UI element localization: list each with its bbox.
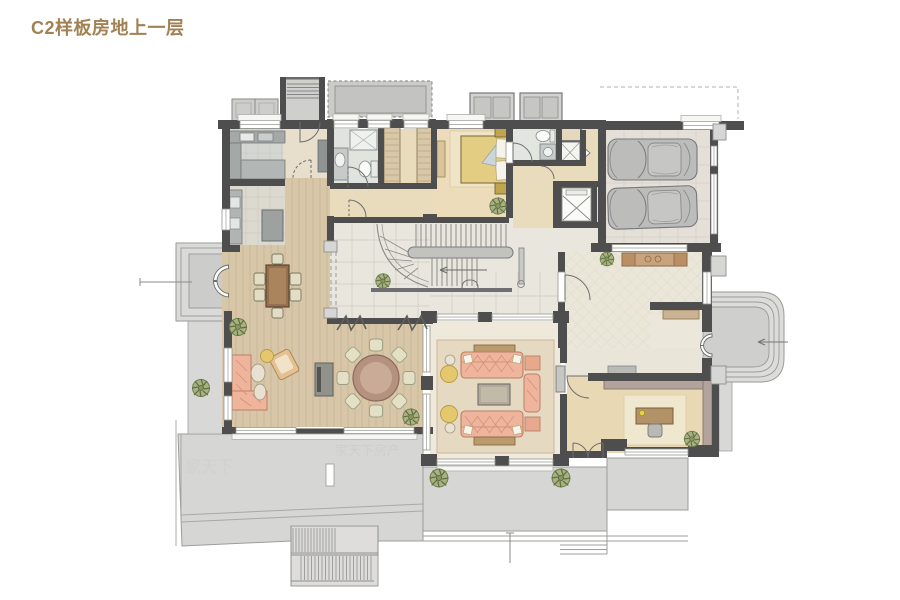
svg-text:家天下房产: 家天下房产 xyxy=(335,443,400,458)
svg-text:家天下: 家天下 xyxy=(185,457,233,476)
